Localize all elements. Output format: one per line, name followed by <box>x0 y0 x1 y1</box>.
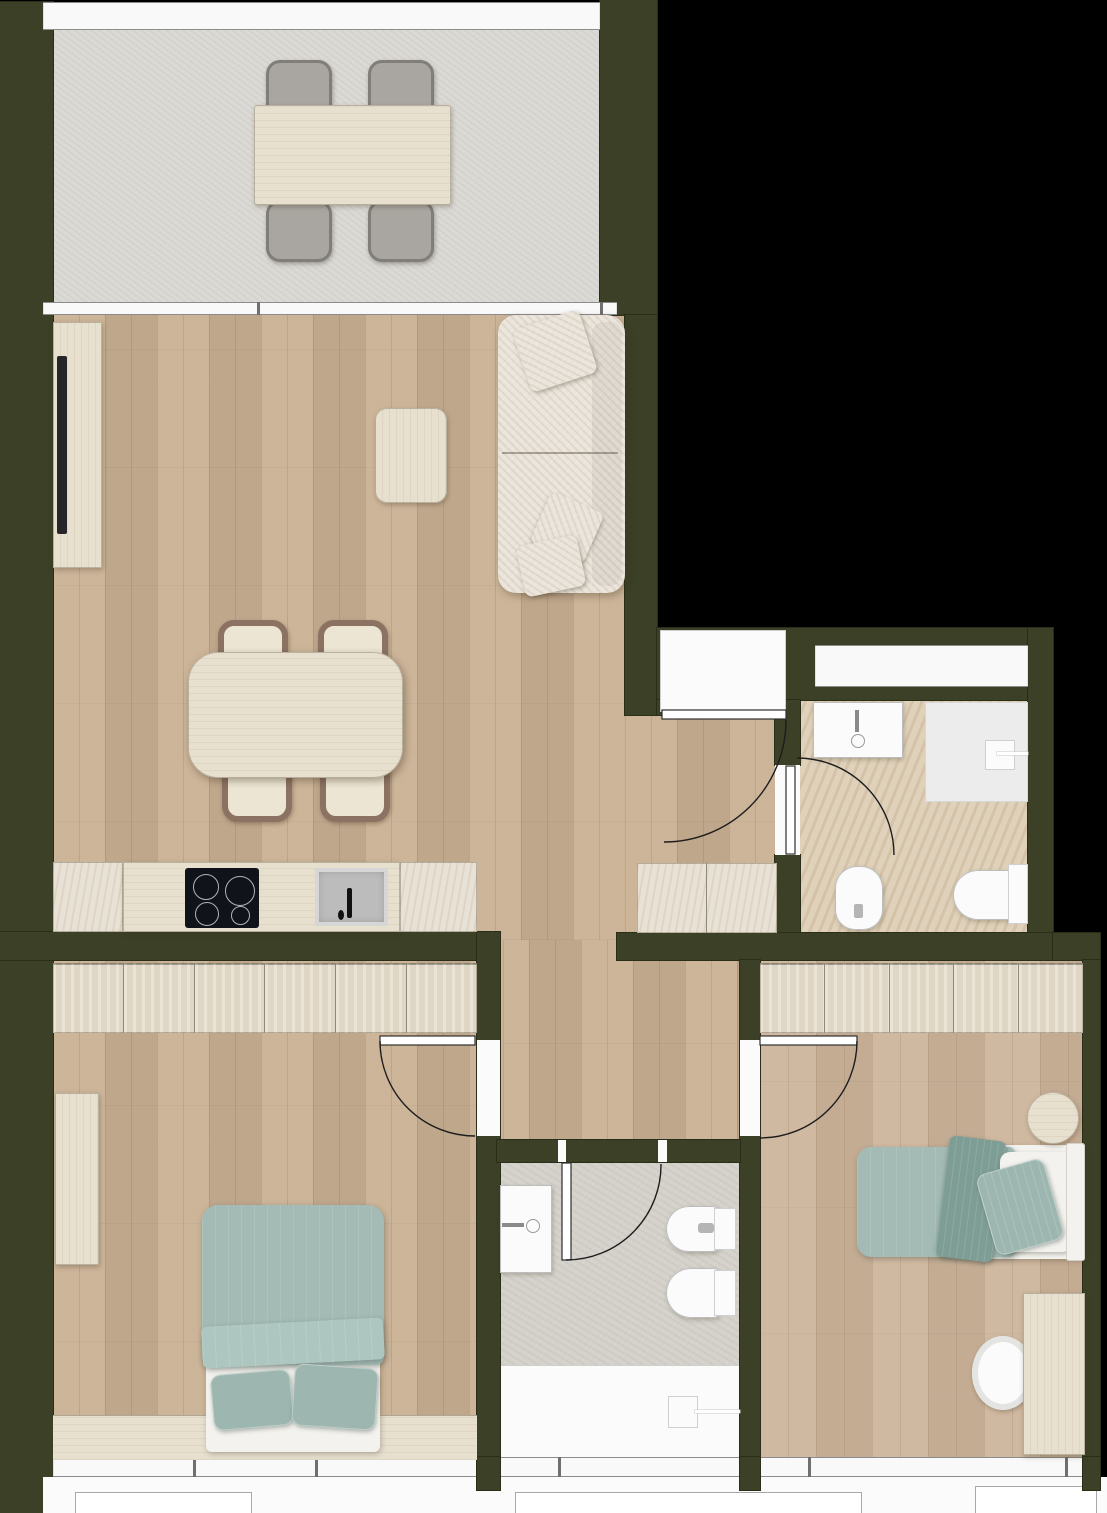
bedroom1-door-arc <box>380 1041 475 1136</box>
door-swing-overlay <box>0 0 1107 1513</box>
bed2-headboard <box>1066 1143 1085 1261</box>
floor-plan <box>0 0 1107 1513</box>
bathroom1-door-leaf <box>786 766 795 854</box>
bedroom2-door-arc <box>760 1041 857 1138</box>
entrance-door-leaf <box>662 710 786 719</box>
bathroom2-door-arc <box>566 1164 661 1260</box>
bedroom2-door-leaf <box>760 1036 857 1045</box>
entrance-door-arc <box>664 720 786 842</box>
bathroom2-door-leaf <box>562 1163 571 1260</box>
bathroom1-door-arc <box>797 758 894 855</box>
bedroom1-door-leaf <box>380 1036 475 1045</box>
